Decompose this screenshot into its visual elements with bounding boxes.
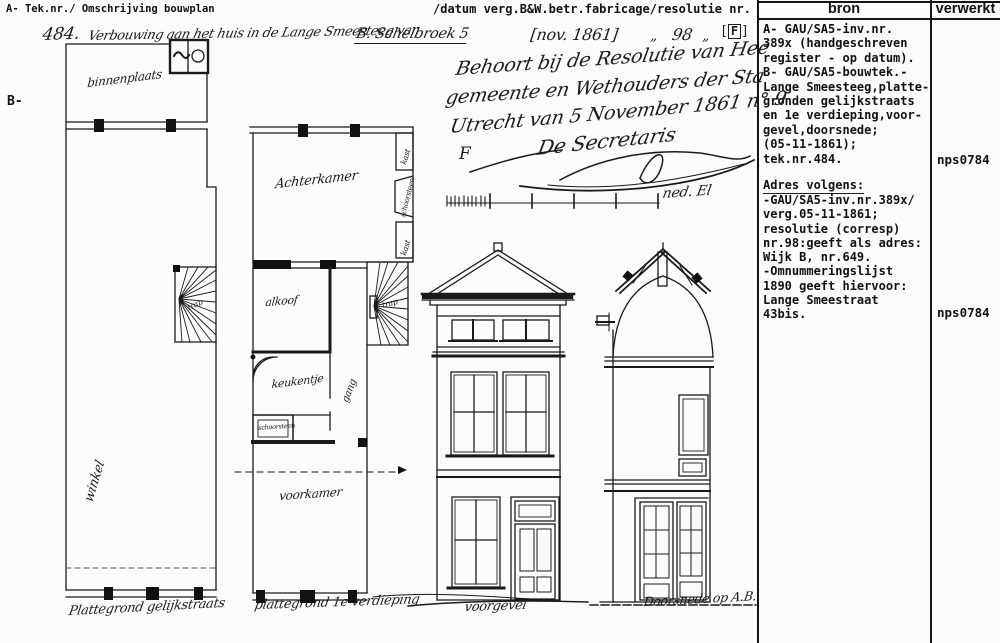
section-drawing <box>590 243 756 605</box>
bron-adres-text: -GAU/SA5-inv.nr.389x/ verg.05-11-1861; r… <box>763 193 931 322</box>
elevation-drawing <box>408 243 588 606</box>
scale-bar <box>447 194 659 208</box>
bron-source-text: A- GAU/SA5-inv.nr. 389x (handgeschreven … <box>763 22 931 166</box>
ground-floor-plan-drawing <box>66 40 216 600</box>
first-floor-plan-drawing <box>235 124 530 603</box>
verwerkt-code-2: nps0784 <box>937 305 990 320</box>
archive-card: A- Tek.nr./ Omschrijving bouwplan /datum… <box>0 0 1000 643</box>
bron-adres-heading: Adres volgens: <box>763 178 864 194</box>
architectural-drawing-canvas <box>0 0 760 643</box>
spiral-stair-ground <box>179 267 216 342</box>
column-header-verwerkt: verwerkt <box>931 1 1000 17</box>
signature-flourish <box>470 150 754 191</box>
column-header-bron: bron <box>758 1 930 17</box>
column-header-rule <box>757 18 1000 20</box>
spiral-stair-first <box>374 262 408 345</box>
verwerkt-code-1: nps0784 <box>937 152 990 167</box>
